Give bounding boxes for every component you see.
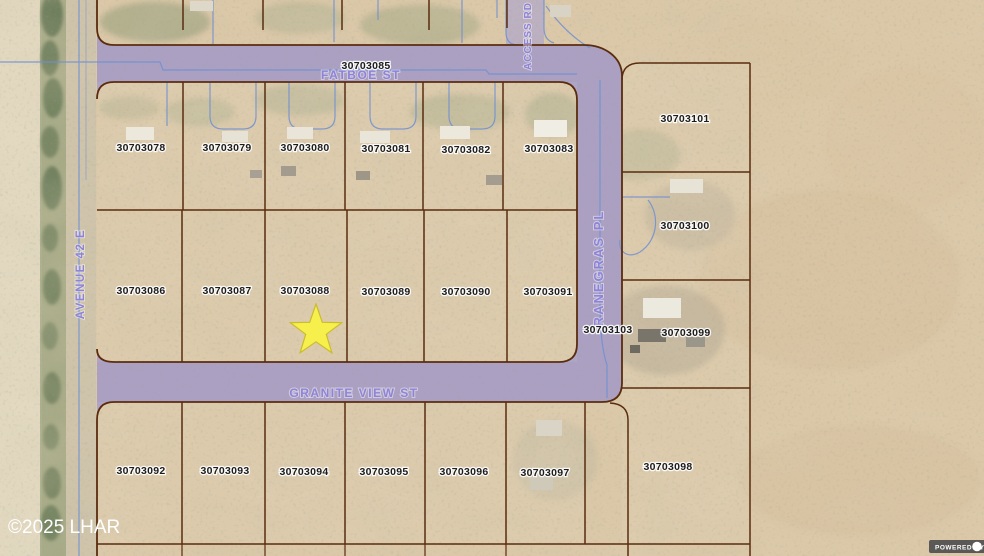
street-label-granite-view: GRANITE VIEW ST <box>289 386 418 400</box>
apn-label: 30703082 <box>441 144 490 156</box>
powered-by-logo-dot <box>972 542 982 552</box>
apn-label: 30703094 <box>279 466 328 478</box>
street-label-access-rd: ACCESS RD <box>523 2 534 70</box>
parcel-map-canvas[interactable]: FATBOE ST GRANITE VIEW ST RANEGRAS PL AV… <box>0 0 984 556</box>
apn-label: 30703083 <box>524 143 573 155</box>
map-view: FATBOE ST GRANITE VIEW ST RANEGRAS PL AV… <box>0 0 984 556</box>
apn-label: 30703099 <box>661 327 710 339</box>
street-label-avenue-42e: AVENUE 42 E <box>75 229 87 319</box>
apn-label: 30703086 <box>116 285 165 297</box>
apn-label: 30703080 <box>280 142 329 154</box>
apn-label: 30703087 <box>202 285 251 297</box>
apn-label: 30703089 <box>361 286 410 298</box>
apn-label: 30703091 <box>523 286 572 298</box>
apn-label: 30703098 <box>643 461 692 473</box>
apn-street-parcel: 30703085 <box>341 60 390 72</box>
powered-by-badge[interactable]: POWERED BY <box>929 540 984 553</box>
apn-label: 30703092 <box>116 465 165 477</box>
apn-label: 30703078 <box>116 142 165 154</box>
apn-label: 30703100 <box>660 220 709 232</box>
apn-label: 30703081 <box>361 143 410 155</box>
copyright-text: ©2025 LHAR <box>8 517 120 538</box>
apn-label: 30703101 <box>660 113 709 125</box>
street-label-ranegras: RANEGRAS PL <box>591 210 606 327</box>
apn-label: 30703079 <box>202 142 251 154</box>
apn-label: 30703096 <box>439 466 488 478</box>
apn-label: 30703095 <box>359 466 408 478</box>
apn-label: 30703093 <box>200 465 249 477</box>
apn-label: 30703090 <box>441 286 490 298</box>
apn-label-subject: 30703088 <box>280 285 329 297</box>
apn-label: 30703097 <box>520 467 569 479</box>
apn-label-road-parcel: 30703103 <box>583 324 632 336</box>
